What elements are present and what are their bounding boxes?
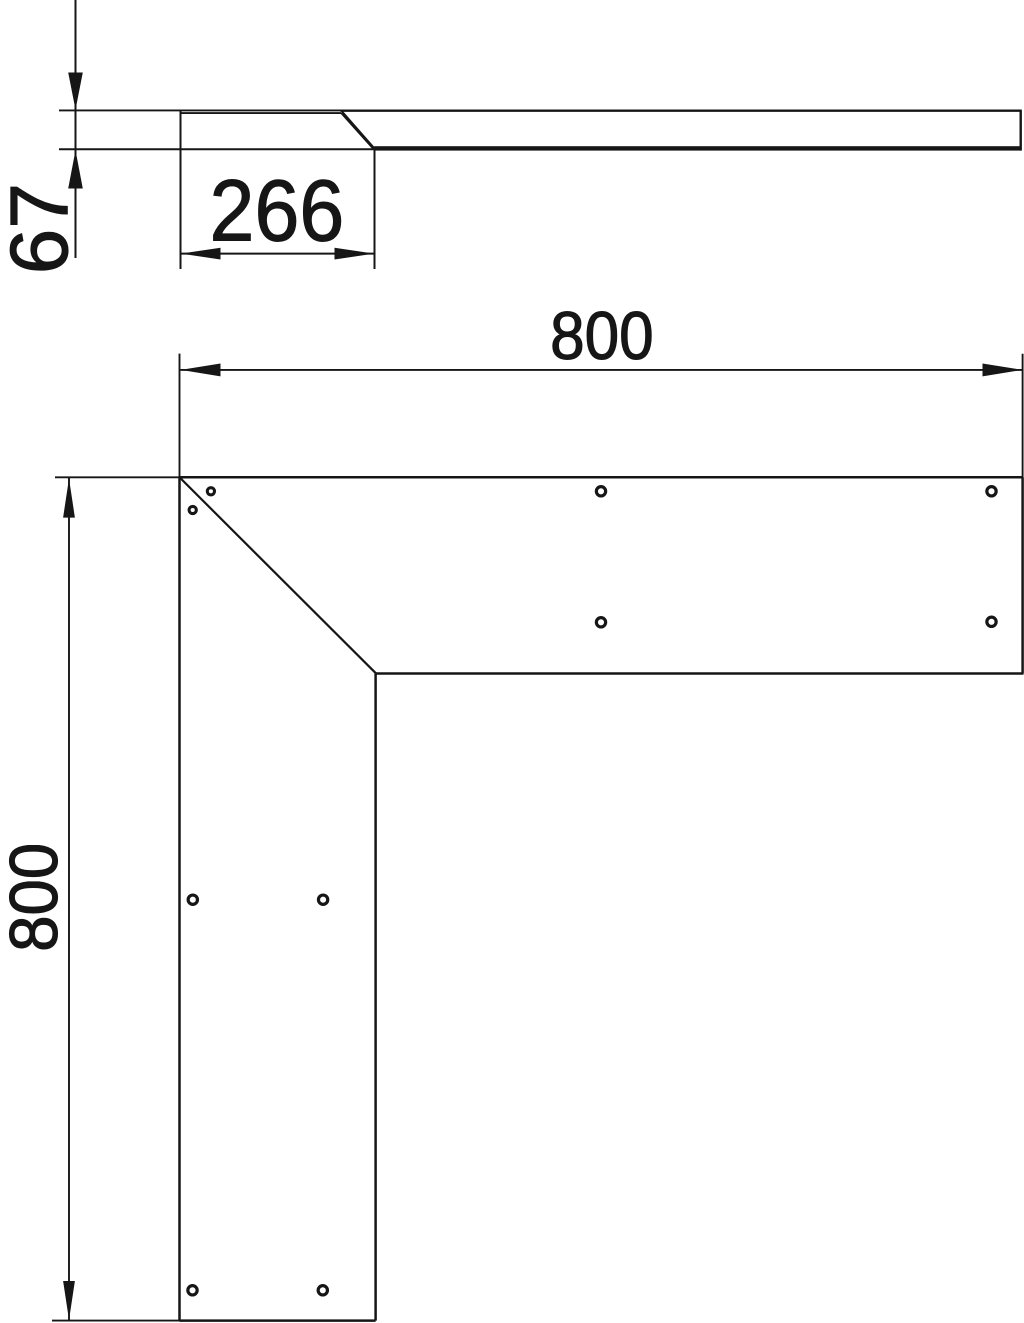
svg-text:266: 266 bbox=[210, 162, 345, 259]
svg-text:800: 800 bbox=[550, 297, 654, 373]
svg-text:800: 800 bbox=[0, 843, 72, 952]
svg-text:67: 67 bbox=[0, 183, 85, 274]
